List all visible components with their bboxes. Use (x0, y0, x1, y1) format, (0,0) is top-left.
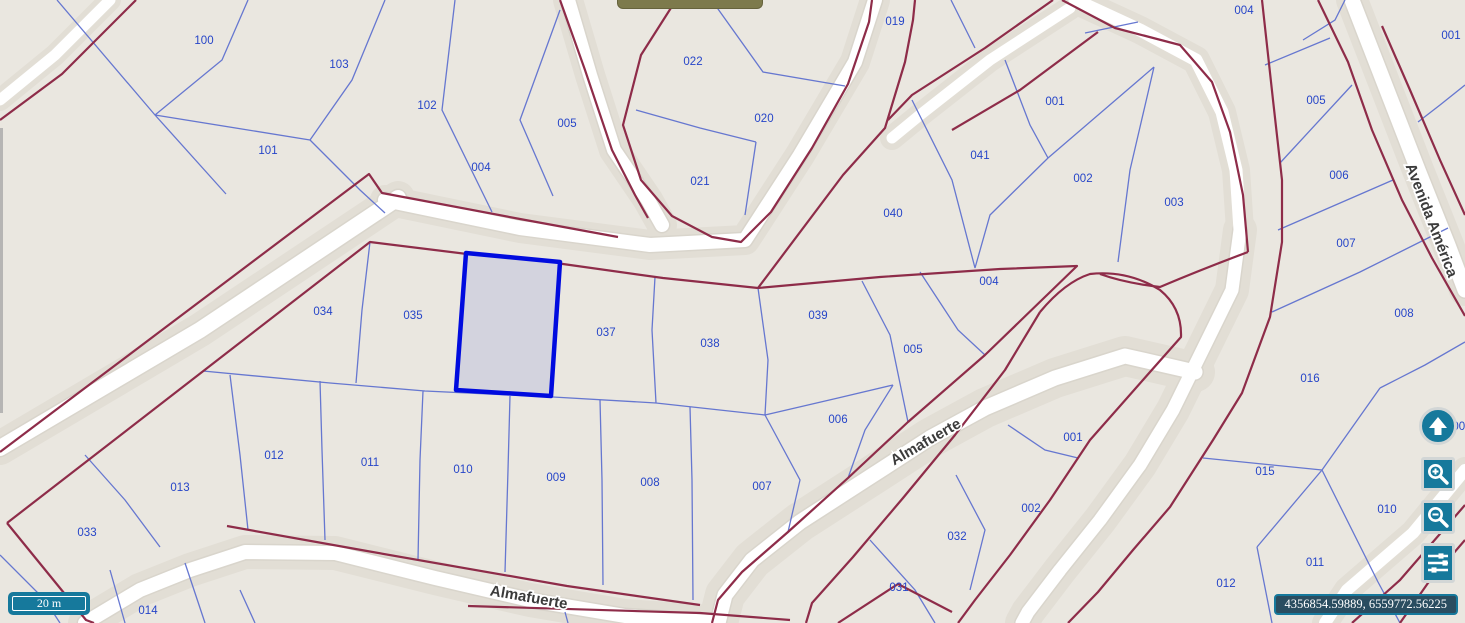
top-notification-bar (617, 0, 763, 9)
parcel-label: 005 (1306, 95, 1325, 107)
pan-north-button[interactable] (1419, 407, 1457, 445)
parcel-label: 002 (1021, 503, 1040, 515)
parcel-label: 013 (170, 482, 189, 494)
scale-bar: 20 m (8, 592, 90, 615)
parcel-label: 038 (700, 338, 719, 350)
parcel-label: 100 (194, 35, 213, 47)
map-edge-artifact (0, 128, 3, 413)
parcel-label: 007 (1336, 238, 1355, 250)
parcel-label: 039 (808, 310, 827, 322)
map-viewer: 1001031021010050040220200210190400410010… (0, 0, 1465, 623)
sliders-icon (1425, 549, 1451, 577)
parcel-label: 007 (752, 481, 771, 493)
coordinates-value: 4356854.59889, 6559772.56225 (1285, 597, 1448, 612)
selected-parcel[interactable] (456, 253, 560, 396)
arrow-up-icon (1426, 414, 1450, 438)
parcel-label: 037 (596, 327, 615, 339)
parcel-label: 031 (889, 582, 908, 594)
magnifier-plus-icon (1425, 461, 1451, 487)
parcel-label: 001 (1063, 432, 1082, 444)
parcel-label: 033 (77, 527, 96, 539)
parcel-label: 006 (828, 414, 847, 426)
magnifier-minus-icon (1425, 504, 1451, 530)
parcel-label: 040 (883, 208, 902, 220)
parcel-label: 019 (885, 16, 904, 28)
parcel-label: 035 (403, 310, 422, 322)
parcel-label: 012 (1216, 578, 1235, 590)
parcel-label: 004 (1234, 5, 1254, 17)
map-canvas[interactable]: 1001031021010050040220200210190400410010… (0, 0, 1465, 623)
parcel-label: 032 (947, 531, 966, 543)
zoom-out-button[interactable] (1421, 500, 1455, 534)
zoom-in-button[interactable] (1421, 457, 1455, 491)
parcel-label: 034 (313, 306, 333, 318)
parcel-label: 011 (361, 457, 379, 469)
parcel-label: 041 (970, 150, 989, 162)
parcel-label: 006 (1329, 170, 1348, 182)
scale-label: 20 m (37, 596, 61, 611)
parcel-label: 010 (1377, 504, 1396, 516)
parcel-label: 101 (258, 145, 277, 157)
parcel-label: 016 (1300, 373, 1319, 385)
parcel-label: 004 (471, 162, 491, 174)
parcel-label: 001 (1441, 30, 1460, 42)
parcel-label: 022 (683, 56, 702, 68)
parcel-label: 009 (546, 472, 565, 484)
roads (0, 0, 1465, 623)
parcel-label: 014 (138, 605, 158, 617)
parcel-label: 001 (1045, 96, 1064, 108)
parcel-label: 011 (1306, 557, 1324, 569)
parcel-label: 015 (1255, 466, 1274, 478)
parcel-label: 005 (903, 344, 922, 356)
parcel-label: 008 (640, 477, 659, 489)
parcel-label: 005 (557, 118, 576, 130)
layer-settings-button[interactable] (1421, 543, 1455, 583)
parcel-label: 003 (1164, 197, 1183, 209)
parcel-label: 012 (264, 450, 283, 462)
parcel-label: 004 (979, 276, 999, 288)
parcel-label: 002 (1073, 173, 1092, 185)
parcel-label: 010 (453, 464, 472, 476)
parcel-label: 021 (690, 176, 709, 188)
parcel-label: 102 (417, 100, 436, 112)
parcel-label: 008 (1394, 308, 1413, 320)
parcel-label: 103 (329, 59, 348, 71)
parcel-label: 020 (754, 113, 773, 125)
coordinates-box: 4356854.59889, 6559772.56225 (1274, 594, 1459, 615)
